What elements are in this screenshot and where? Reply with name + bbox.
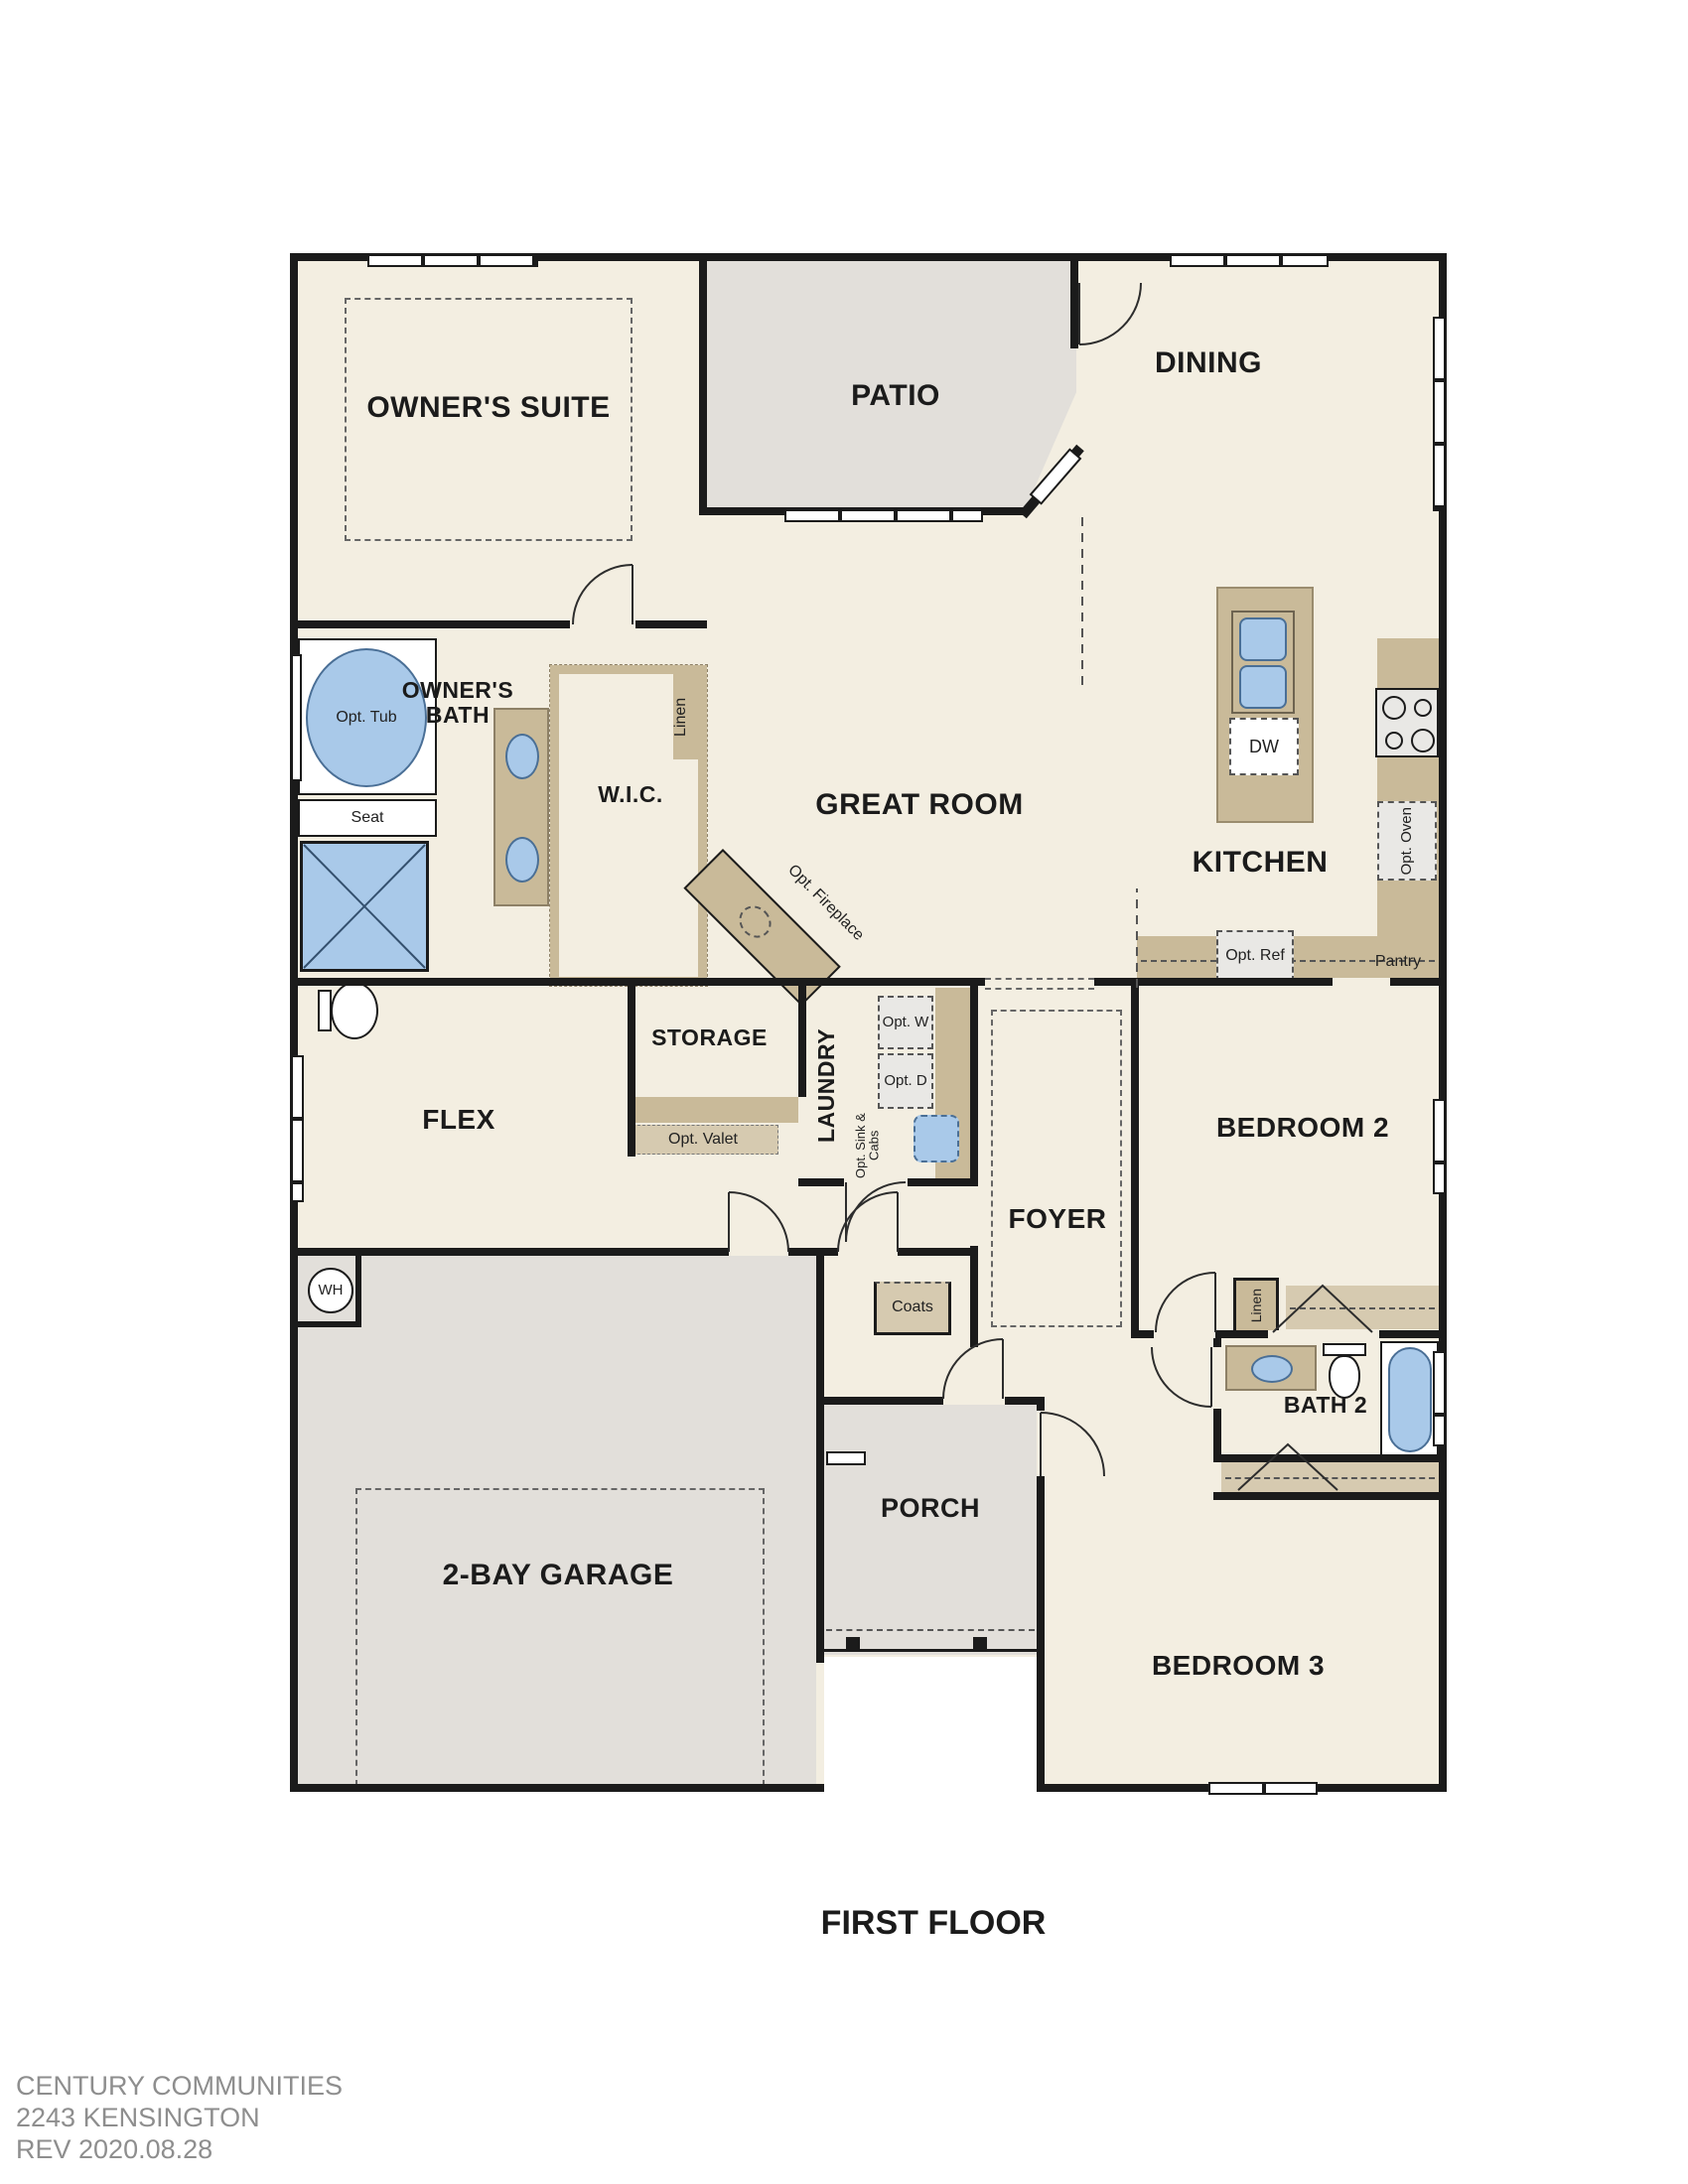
opt-w-label: Opt. W: [883, 1015, 929, 1030]
window: [1208, 1782, 1318, 1795]
coats-closet: Coats: [874, 1282, 951, 1335]
window: [291, 1055, 304, 1202]
owners-bath-label: OWNER'S BATH: [383, 678, 532, 728]
porch-post: [973, 1637, 987, 1651]
dishwasher: DW: [1229, 718, 1299, 775]
laundry-sink: [914, 1115, 959, 1162]
sheet-title: FIRST FLOOR: [685, 1904, 1182, 1943]
foyer-tray-ceiling: [991, 1010, 1122, 1327]
wall-bath2-bottom: [1213, 1454, 1447, 1462]
foyer-label: FOYER: [983, 1204, 1132, 1234]
wall-garage-right: [816, 1248, 824, 1663]
kitchen-counter-right: [1377, 638, 1439, 941]
window: [784, 509, 983, 522]
optional-oven: Opt. Oven: [1377, 801, 1437, 881]
bath2-vanity: [1225, 1345, 1317, 1391]
window: [826, 1451, 866, 1465]
cooktop: [1375, 688, 1439, 757]
opt-sink-cabs-label: Opt. Sink & Cabs: [854, 1105, 910, 1186]
wall-foyer-left: [970, 978, 978, 1347]
shower: [300, 841, 429, 972]
window: [367, 254, 538, 267]
floorplan-page: { "document": { "title": "FIRST FLOOR", …: [0, 0, 1688, 2184]
bath2-tub: [1388, 1347, 1432, 1452]
optional-refrigerator: Opt. Ref: [1216, 930, 1294, 982]
bath-vanity: [493, 708, 549, 906]
window: [291, 654, 302, 781]
garage-door-outline: [355, 1488, 765, 1786]
wall-foyer-right: [1131, 978, 1139, 1338]
hall-linen-closet: Linen: [1233, 1278, 1279, 1333]
wh-label: WH: [319, 1283, 344, 1298]
window: [1170, 254, 1329, 267]
bath2-label: BATH 2: [1271, 1393, 1380, 1418]
great-room-label: GREAT ROOM: [805, 789, 1034, 821]
footer-company: CENTURY COMMUNITIES: [16, 2071, 343, 2103]
wall-storage-laundry: [798, 978, 806, 1097]
wall-left: [290, 253, 298, 1792]
wall-mid: [290, 978, 1447, 986]
dw-label: DW: [1249, 738, 1279, 756]
owners-suite-label: OWNER'S SUITE: [345, 392, 633, 424]
water-heater: WH: [308, 1268, 353, 1313]
bedroom3-label: BEDROOM 3: [1074, 1651, 1402, 1681]
opt-valet-label: Opt. Valet: [668, 1132, 738, 1149]
wall-wh-nook-bottom: [298, 1321, 361, 1327]
sheet-footer: CENTURY COMMUNITIES 2243 KENSINGTON REV …: [16, 2071, 343, 2166]
hall-linen-label: Linen: [1249, 1289, 1264, 1322]
wic-linen-closet: Linen: [673, 674, 699, 759]
bedroom3-closet-shelf: [1221, 1462, 1439, 1492]
footer-revision: REV 2020.08.28: [16, 2134, 343, 2166]
footer-plan-number: 2243 KENSINGTON: [16, 2103, 343, 2134]
porch-step-line: [826, 1629, 1035, 1631]
exterior-area: [824, 1657, 1037, 1792]
toilet: [318, 982, 381, 1039]
bedroom2-closet-shelf: [1286, 1286, 1439, 1329]
optional-washer: Opt. W: [878, 996, 933, 1049]
dining-label: DINING: [1119, 347, 1298, 379]
porch-area: [824, 1405, 1037, 1655]
tub-seat: Seat: [298, 799, 437, 837]
opt-ref-label: Opt. Ref: [1225, 948, 1285, 965]
laundry-label: LAUNDRY: [814, 996, 848, 1174]
wall-porch-front: [816, 1397, 1045, 1405]
pantry-label: Pantry: [1362, 954, 1434, 971]
window: [1433, 317, 1446, 511]
kitchen-label: KITCHEN: [1161, 847, 1359, 879]
window: [1433, 1099, 1446, 1194]
window: [1433, 1351, 1446, 1446]
porch-post: [846, 1637, 860, 1651]
optional-dryer: Opt. D: [878, 1053, 933, 1109]
wall-flex-storage: [628, 978, 635, 1157]
flex-label: FLEX: [369, 1105, 548, 1135]
wall-bedroom3-top: [1213, 1492, 1447, 1500]
wall-wh-nook-right: [355, 1256, 361, 1327]
storage-counter: [635, 1097, 798, 1123]
wic-label: W.I.C.: [578, 782, 683, 807]
wall-garage-bottom: [290, 1784, 824, 1792]
opt-d-label: Opt. D: [884, 1073, 926, 1089]
garage-label: 2-BAY GARAGE: [379, 1560, 737, 1591]
seat-label: Seat: [352, 810, 384, 827]
opt-oven-label: Opt. Oven: [1399, 807, 1415, 875]
storage-label: STORAGE: [628, 1025, 791, 1050]
patio-label: PATIO: [786, 380, 1005, 412]
bedroom2-label: BEDROOM 2: [1189, 1113, 1417, 1143]
wall-suite-patio: [699, 253, 707, 513]
wall-suite-bottom: [290, 620, 707, 628]
optional-valet: Opt. Valet: [628, 1125, 778, 1155]
wall-patio-dining: [1070, 253, 1078, 348]
coats-label: Coats: [892, 1299, 933, 1316]
porch-label: PORCH: [846, 1494, 1015, 1523]
island-sink: [1231, 611, 1295, 714]
first-floor-plan: Opt. Tub Seat Linen DW Opt. Oven Opt. Re…: [290, 253, 1447, 1792]
